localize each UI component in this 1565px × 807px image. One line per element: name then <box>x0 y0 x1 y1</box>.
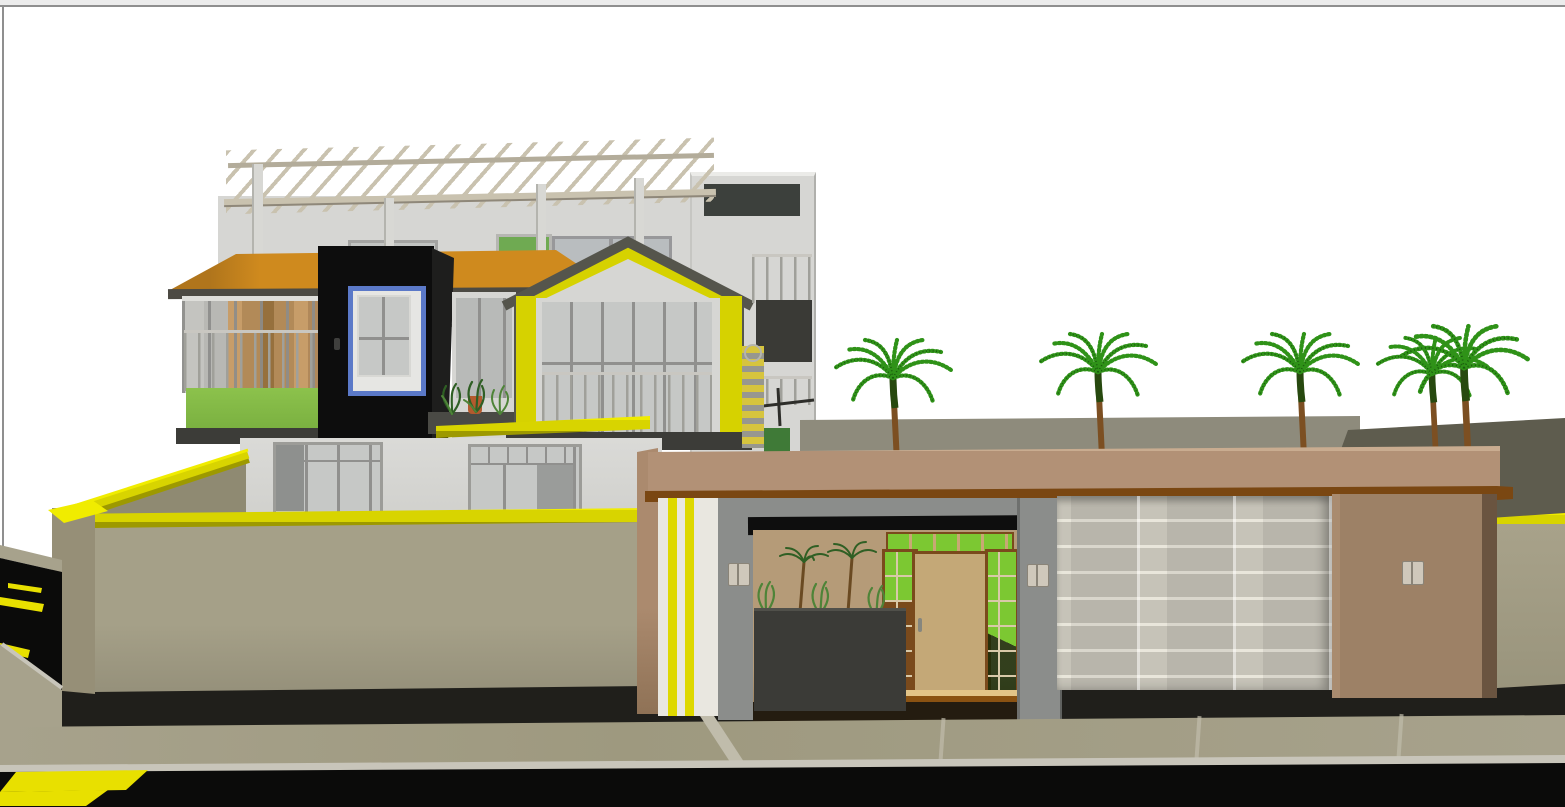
entrance-canopy-fascia <box>648 446 1500 492</box>
gable-jamb-right <box>720 296 744 438</box>
tower-green-door <box>764 428 790 454</box>
gable-jamb-left <box>514 296 536 438</box>
wooden-entrance-door <box>912 551 991 705</box>
wall-sconce <box>1402 561 1424 585</box>
entry-planter-box <box>754 608 906 711</box>
stair-tower-inset-panel <box>704 184 800 216</box>
window-dark-pane <box>276 445 304 511</box>
garage-roller-door <box>1057 496 1332 690</box>
gate-pillar-gray-right <box>1017 498 1062 720</box>
right-pillar-base <box>1332 698 1497 716</box>
garage-door-stamped-panels <box>1057 496 1332 690</box>
entrance-pillar-right-brown <box>1332 494 1497 714</box>
wall-sconce <box>1027 564 1049 587</box>
yellow-gable-pediment <box>504 236 752 306</box>
corner-curb-line <box>0 634 64 730</box>
door-handle <box>918 618 922 632</box>
tower-dark-opening <box>756 300 812 362</box>
ground-window-1 <box>273 442 383 520</box>
tower-balcony-railing-upper <box>752 254 812 303</box>
viewport-3d[interactable] <box>0 0 1565 807</box>
far-wall-face <box>1497 524 1565 692</box>
balcony-glass-railing <box>184 330 334 391</box>
wall-lamp-round <box>744 344 762 362</box>
scene-architectural-render <box>0 0 1565 807</box>
ground-window-2 <box>468 444 582 520</box>
window-dark-pane <box>537 465 573 511</box>
striped-gate-pillar <box>658 498 718 724</box>
green-balcony-panel <box>186 388 334 430</box>
entry-planter-plants <box>748 532 908 618</box>
door-sidelight-right <box>985 549 1019 705</box>
terrace-potted-plants <box>436 362 516 418</box>
compound-wall-front <box>95 520 650 694</box>
gable-interior-wall <box>534 298 720 436</box>
blue-frame-window <box>348 286 426 396</box>
door-knob <box>334 338 340 350</box>
palm-trees <box>820 316 1520 466</box>
window-transom-panes <box>471 447 573 465</box>
wall-sconce <box>728 563 750 586</box>
blue-window-panes <box>357 295 411 377</box>
